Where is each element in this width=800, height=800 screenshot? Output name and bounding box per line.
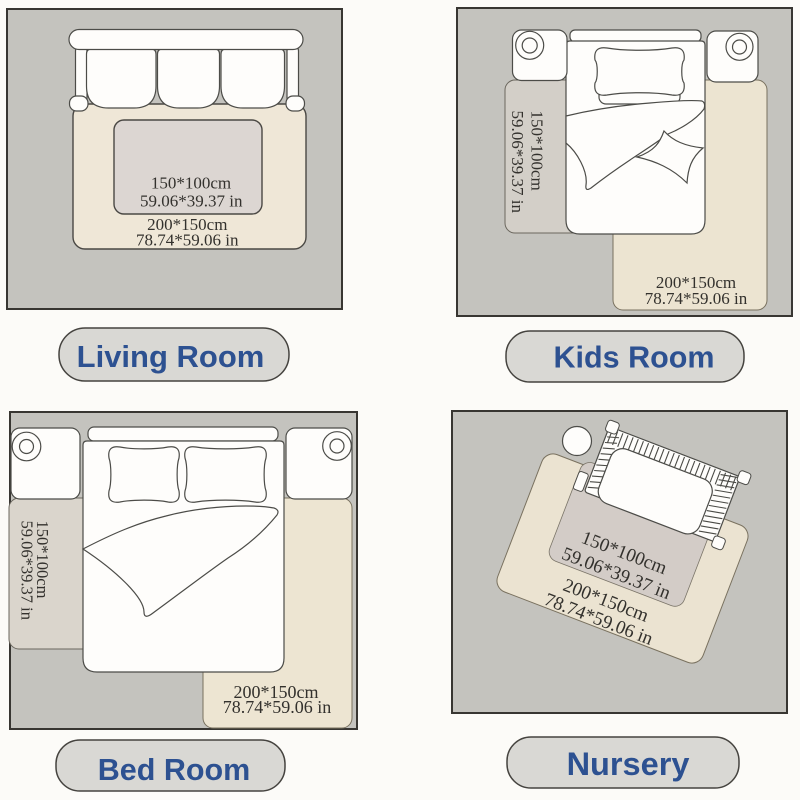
svg-text:78.74*59.06 in: 78.74*59.06 in <box>645 289 748 308</box>
svg-text:Living Room: Living Room <box>77 339 265 374</box>
svg-text:59.06*39.37 in: 59.06*39.37 in <box>508 111 527 214</box>
svg-text:Nursery: Nursery <box>567 746 690 782</box>
svg-text:59.06*39.37 in: 59.06*39.37 in <box>18 521 37 620</box>
svg-text:Bed Room: Bed Room <box>98 753 251 787</box>
svg-text:78.74*59.06 in: 78.74*59.06 in <box>223 697 332 717</box>
svg-text:Kids Room: Kids Room <box>554 341 715 375</box>
svg-text:150*100cm: 150*100cm <box>151 174 231 193</box>
svg-text:78.74*59.06 in: 78.74*59.06 in <box>136 231 239 250</box>
svg-text:150*100cm: 150*100cm <box>528 111 547 191</box>
svg-text:59.06*39.37 in: 59.06*39.37 in <box>140 192 243 211</box>
